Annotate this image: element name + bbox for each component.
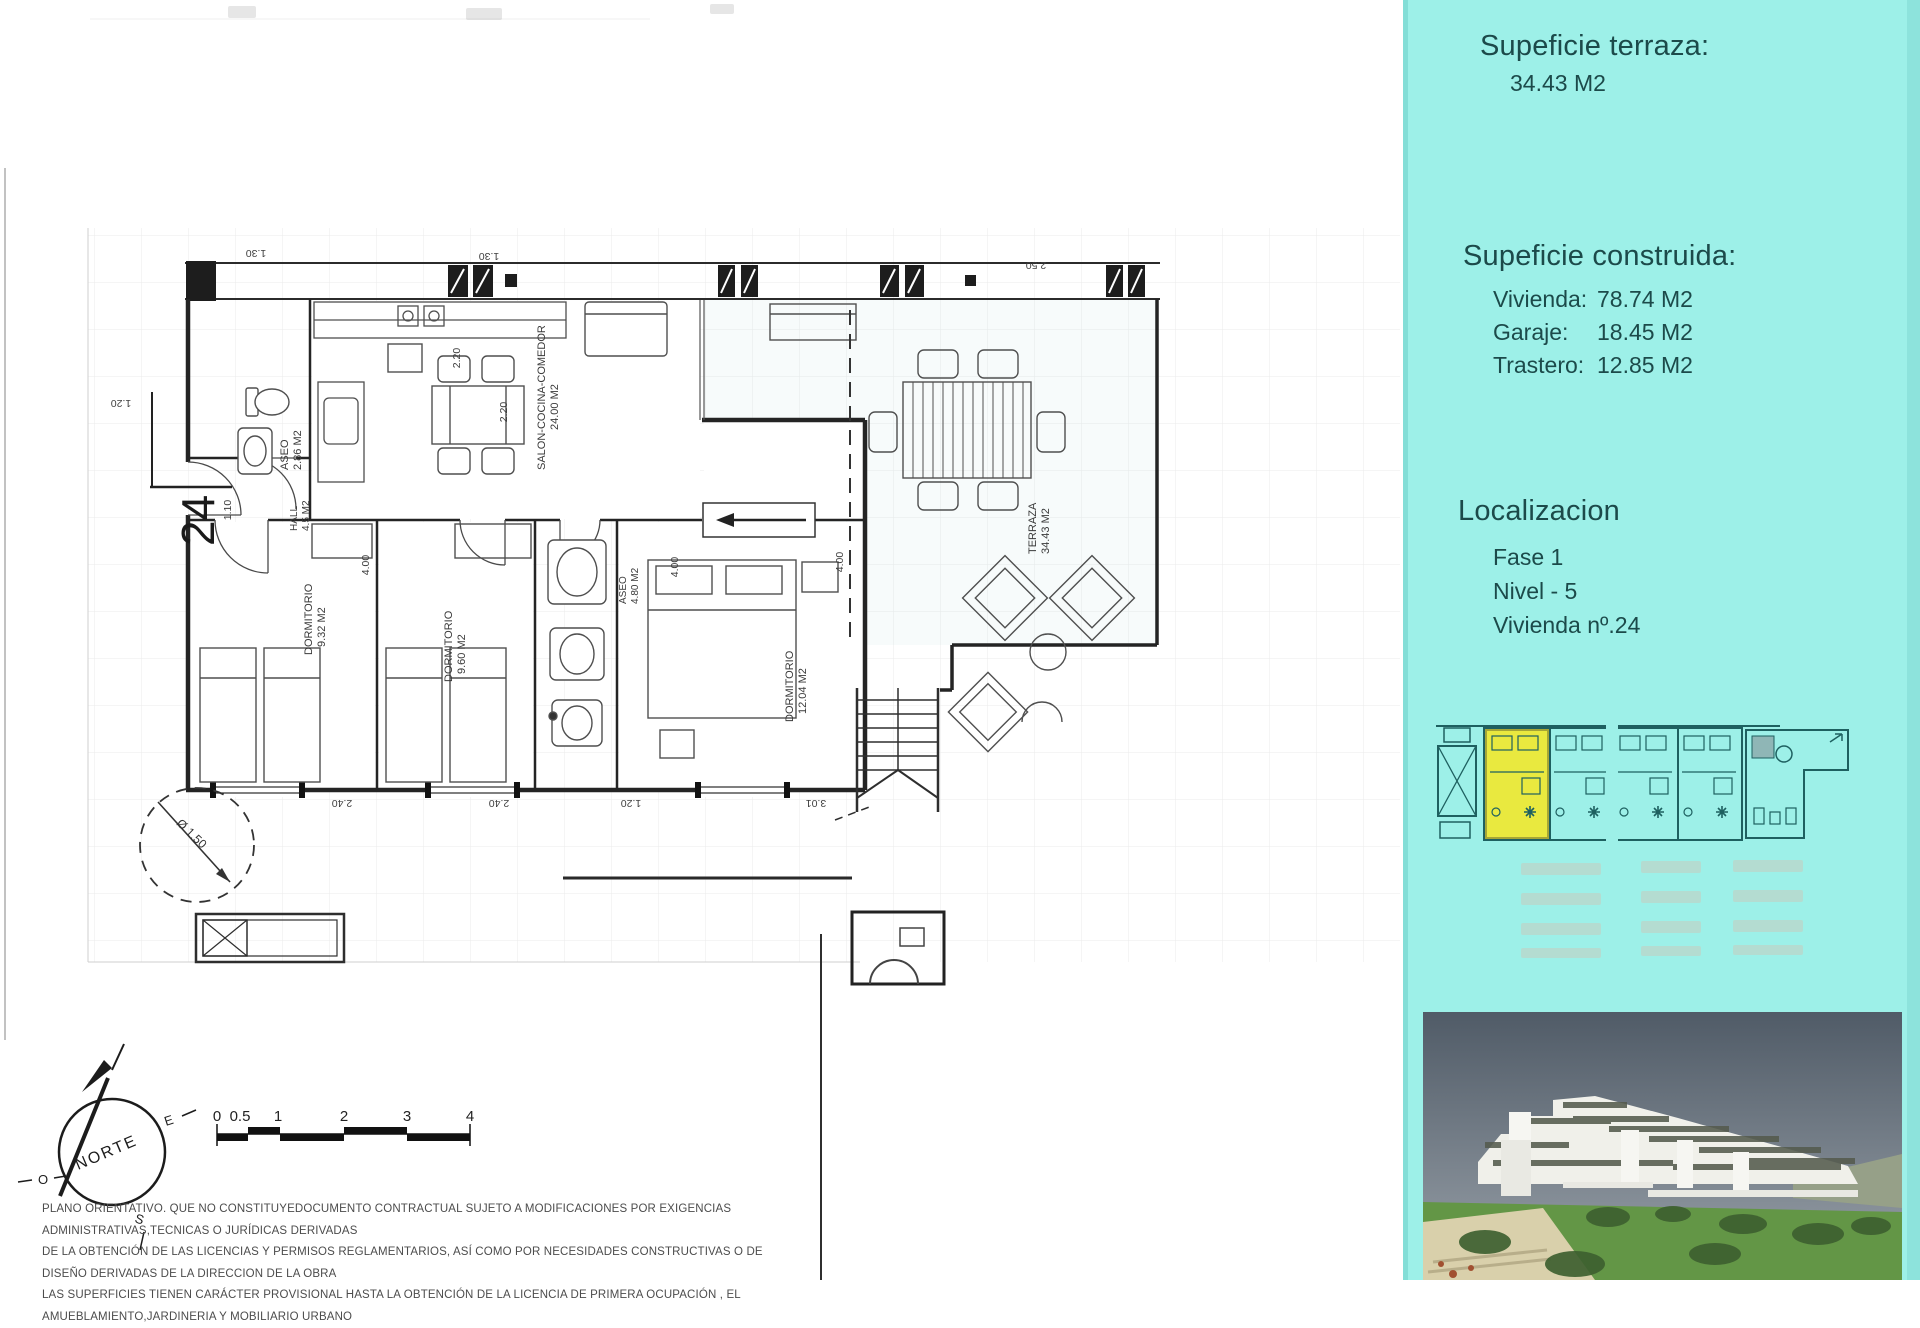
faded-table-row (1733, 890, 1803, 902)
info-side-panel: Supeficie terraza: 34.43 M2 Supeficie co… (1403, 0, 1920, 1280)
room-label: HALL (289, 506, 300, 531)
room-label: DORMITORIO (784, 650, 796, 722)
faded-table-row (1641, 946, 1701, 956)
location-line: Vivienda nº.24 (1493, 608, 1640, 642)
built-row-label: Vivienda: (1493, 283, 1597, 316)
plan-sheet-page: { "panel": { "terrace_title": "Supeficie… (0, 0, 1920, 1280)
terrace-value: 34.43 M2 (1510, 70, 1606, 97)
svg-text:4.00: 4.00 (834, 552, 846, 573)
svg-text:1.30: 1.30 (479, 250, 500, 262)
unit-number: 24 (172, 495, 224, 546)
minimap-corridor (1606, 724, 1618, 842)
faded-table-row (1733, 945, 1803, 955)
disclaimer-line: PLANO ORIENTATIVO. QUE NO CONSTITUYEDOCU… (42, 1199, 802, 1242)
built-row: Vivienda: 78.74 M2 (1493, 283, 1793, 316)
location-line: Fase 1 (1493, 540, 1640, 574)
built-row-value: 12.85 M2 (1597, 349, 1693, 382)
faded-table-row (1641, 861, 1701, 873)
built-rows: Vivienda: 78.74 M2 Garaje: 18.45 M2 Tras… (1493, 283, 1793, 382)
room-label: TERRAZA (1027, 502, 1039, 554)
floor-plan-drawing: Ø 1.50 24 ASEO 2.86 M2 HALL 4.5 M2 SALON… (0, 0, 1403, 1280)
room-area: 9.32 M2 (316, 607, 328, 647)
faded-table-row (1521, 893, 1601, 905)
disclaimer-text: PLANO ORIENTATIVO. QUE NO CONSTITUYEDOCU… (42, 1199, 802, 1328)
terrace-title: Supeficie terraza: (1480, 30, 1709, 63)
room-area: 34.43 M2 (1040, 508, 1052, 554)
room-label: SALON-COCINA-COMEDOR (536, 325, 548, 470)
room-label: DORMITORIO (303, 583, 315, 655)
svg-text:3.01: 3.01 (806, 797, 827, 809)
svg-text:4.00: 4.00 (669, 557, 681, 578)
built-row-value: 78.74 M2 (1597, 283, 1693, 316)
windows (210, 782, 790, 798)
svg-text:4: 4 (466, 1108, 474, 1125)
scale-bar: 0 0.5 1 2 3 4 (213, 1108, 474, 1146)
disclaimer-line: DE LA OBTENCIÓN DE LAS LICENCIAS Y PERMI… (42, 1242, 802, 1285)
faded-table-row (1733, 920, 1803, 932)
aseo2-fixtures (548, 540, 606, 746)
built-row: Trastero: 12.85 M2 (1493, 349, 1793, 382)
svg-text:1.10: 1.10 (222, 500, 234, 521)
development-photo (1423, 1012, 1902, 1280)
location-minimap (1432, 712, 1852, 852)
room-area: 9.60 M2 (456, 634, 468, 674)
location-lines: Fase 1 Nivel - 5 Vivienda nº.24 (1493, 540, 1640, 642)
svg-text:4.00: 4.00 (360, 555, 372, 576)
built-row-label: Garaje: (1493, 316, 1597, 349)
compass-east: E (162, 1112, 175, 1129)
svg-text:2: 2 (340, 1108, 348, 1125)
sliding-door (703, 503, 815, 537)
minimap-fan-marks (1524, 806, 1728, 818)
faded-table-row (1521, 863, 1601, 875)
faded-table-row (1733, 860, 1803, 872)
built-row: Garaje: 18.45 M2 (1493, 316, 1793, 349)
svg-text:2.50: 2.50 (1026, 259, 1047, 271)
svg-text:1.20: 1.20 (621, 797, 642, 809)
svg-text:1.20: 1.20 (111, 397, 132, 409)
title-block-divider (820, 934, 822, 1280)
room-area: 4.5 M2 (301, 500, 312, 531)
location-title: Localizacion (1458, 495, 1620, 528)
minimap-garage (1746, 730, 1848, 838)
svg-text:2.20: 2.20 (451, 348, 463, 369)
highlighted-unit (1486, 730, 1548, 838)
room-label: DORMITORIO (443, 610, 455, 682)
built-row-value: 18.45 M2 (1597, 316, 1693, 349)
room-area: 24.00 M2 (549, 384, 561, 430)
svg-text:2.20: 2.20 (498, 402, 510, 423)
svg-text:1.30: 1.30 (246, 247, 267, 259)
location-line: Nivel - 5 (1493, 574, 1640, 608)
room-label: ASEO (618, 576, 629, 604)
built-title: Supeficie construida: (1463, 240, 1736, 273)
faded-table-row (1521, 923, 1601, 935)
room-label: ASEO (279, 439, 291, 470)
room-area: 12.04 M2 (797, 668, 809, 714)
built-row-label: Trastero: (1493, 349, 1597, 382)
faded-table-row (1641, 891, 1701, 903)
room-area: 4.80 M2 (630, 567, 641, 604)
faded-table-row (1521, 948, 1601, 958)
room-area: 2.86 M2 (292, 430, 304, 470)
svg-text:2.40: 2.40 (332, 797, 353, 809)
svg-text:0: 0 (213, 1108, 221, 1125)
svg-text:2.40: 2.40 (489, 797, 510, 809)
svg-text:1: 1 (274, 1108, 282, 1125)
compass-west: O (38, 1172, 48, 1187)
svg-text:0.5: 0.5 (230, 1108, 251, 1125)
svg-text:3: 3 (403, 1108, 411, 1125)
disclaimer-line: LAS SUPERFICIES TIENEN CARÁCTER PROVISIO… (42, 1285, 802, 1328)
faded-table-row (1641, 921, 1701, 933)
